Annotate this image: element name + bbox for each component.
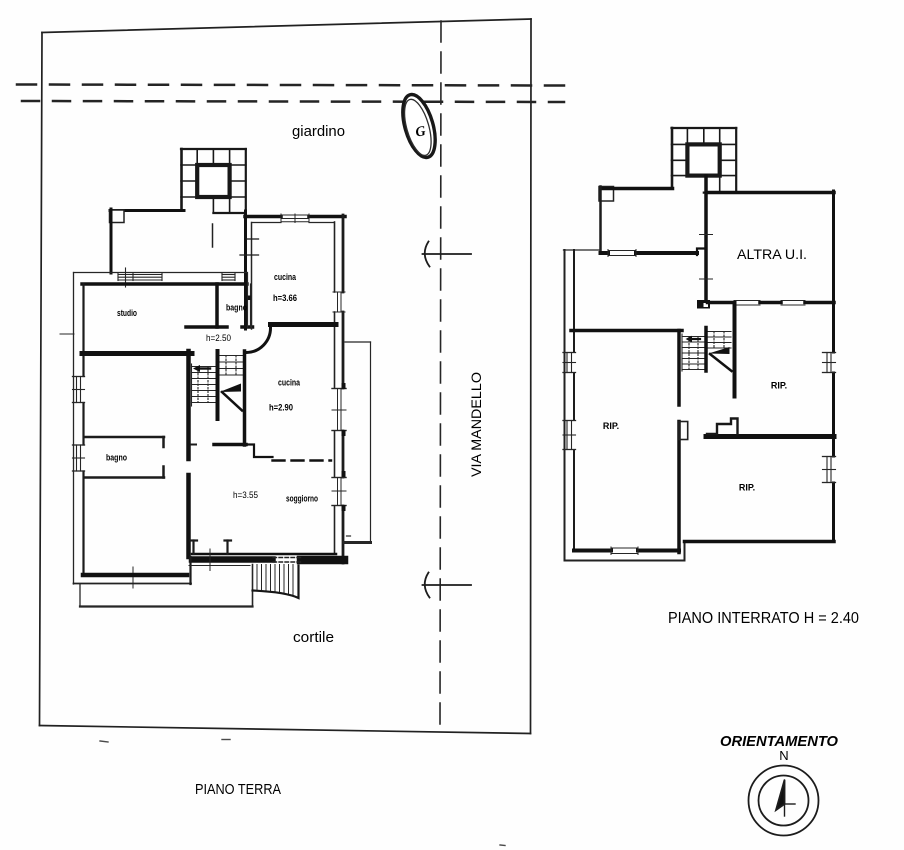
svg-text:h=2.90: h=2.90: [269, 403, 293, 413]
svg-text:PIANO INTERRATO H = 2.40: PIANO INTERRATO H = 2.40: [668, 610, 859, 627]
svg-text:cucina: cucina: [278, 378, 301, 388]
svg-text:ALTRA U.I.: ALTRA U.I.: [737, 246, 807, 262]
svg-text:cucina: cucina: [274, 272, 297, 282]
svg-text:h=2.50: h=2.50: [206, 333, 231, 344]
svg-text:N: N: [779, 748, 788, 763]
svg-text:RIP.: RIP.: [603, 421, 619, 431]
svg-text:bagno: bagno: [106, 453, 127, 463]
svg-text:soggiorno: soggiorno: [286, 494, 318, 504]
svg-text:RIP.: RIP.: [771, 381, 787, 391]
svg-text:PIANO TERRA: PIANO TERRA: [195, 781, 281, 798]
svg-text:giardino: giardino: [292, 123, 345, 140]
svg-text:VIA MANDELLO: VIA MANDELLO: [469, 372, 484, 477]
svg-text:studio: studio: [117, 308, 137, 318]
svg-text:bagno: bagno: [226, 303, 247, 313]
svg-text:cortile: cortile: [293, 630, 334, 646]
svg-text:h=3.66: h=3.66: [273, 293, 297, 303]
svg-text:RIP.: RIP.: [739, 483, 755, 493]
svg-text:h=3.55: h=3.55: [233, 490, 258, 501]
